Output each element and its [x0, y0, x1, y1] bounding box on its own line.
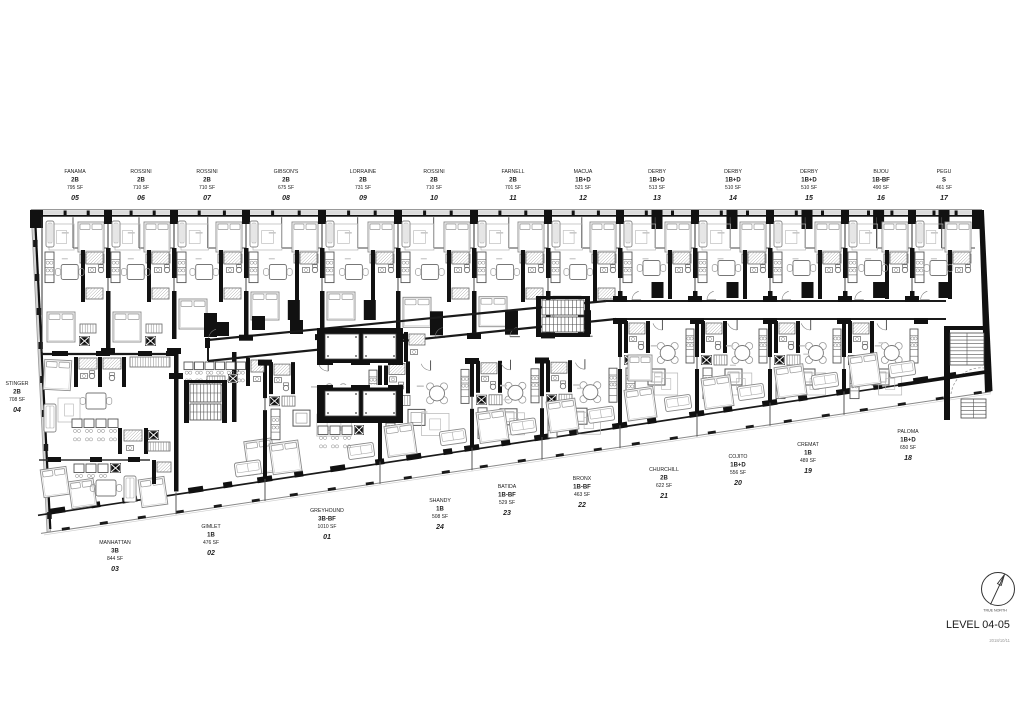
svg-text:BRONX: BRONX — [573, 476, 592, 482]
svg-text:18: 18 — [904, 455, 912, 462]
svg-text:07: 07 — [203, 195, 212, 202]
svg-text:1010 SF: 1010 SF — [318, 524, 337, 530]
svg-text:489 SF: 489 SF — [800, 458, 816, 464]
svg-text:04: 04 — [13, 407, 21, 414]
svg-text:529 SF: 529 SF — [499, 500, 515, 506]
svg-text:675 SF: 675 SF — [278, 185, 294, 191]
svg-text:1B+D: 1B+D — [575, 178, 591, 184]
svg-text:DERBY: DERBY — [800, 169, 818, 175]
svg-text:476 SF: 476 SF — [203, 540, 219, 546]
svg-text:SHANDY: SHANDY — [429, 498, 451, 504]
svg-text:1B-BF: 1B-BF — [872, 178, 890, 184]
svg-text:510 SF: 510 SF — [725, 185, 741, 191]
svg-text:19: 19 — [804, 468, 812, 475]
svg-text:1B: 1B — [436, 507, 444, 513]
svg-text:1B+D: 1B+D — [725, 178, 741, 184]
svg-text:2B: 2B — [13, 390, 21, 396]
svg-text:731 SF: 731 SF — [355, 185, 371, 191]
svg-text:2B: 2B — [282, 178, 290, 184]
svg-text:2B: 2B — [660, 476, 668, 482]
svg-text:GIMLET: GIMLET — [201, 524, 221, 530]
svg-text:FANAMA: FANAMA — [64, 169, 86, 175]
svg-text:650 SF: 650 SF — [900, 445, 916, 451]
svg-text:06: 06 — [137, 195, 145, 202]
svg-text:MACUA: MACUA — [574, 169, 593, 175]
svg-text:2B: 2B — [203, 178, 211, 184]
svg-text:ROSSINI: ROSSINI — [196, 169, 217, 175]
svg-text:2018/10/11: 2018/10/11 — [989, 638, 1010, 643]
svg-text:2B: 2B — [359, 178, 367, 184]
svg-text:1B+D: 1B+D — [801, 178, 817, 184]
svg-text:PALOMA: PALOMA — [897, 429, 919, 435]
svg-text:844 SF: 844 SF — [107, 556, 123, 562]
svg-text:556 SF: 556 SF — [730, 470, 746, 476]
svg-text:LEVEL 04-05: LEVEL 04-05 — [946, 619, 1010, 631]
svg-text:20: 20 — [733, 480, 742, 487]
svg-text:24: 24 — [435, 524, 444, 531]
svg-text:2B: 2B — [137, 178, 145, 184]
svg-text:S: S — [942, 178, 946, 184]
svg-text:09: 09 — [359, 195, 367, 202]
svg-text:08: 08 — [282, 195, 290, 202]
svg-text:22: 22 — [577, 502, 586, 509]
svg-text:2B: 2B — [430, 178, 438, 184]
svg-text:STINGER: STINGER — [5, 381, 28, 387]
svg-text:11: 11 — [509, 195, 516, 202]
svg-text:PEGU: PEGU — [937, 169, 952, 175]
svg-text:14: 14 — [729, 195, 737, 202]
svg-text:521 SF: 521 SF — [575, 185, 591, 191]
svg-text:23: 23 — [502, 510, 511, 517]
svg-text:513 SF: 513 SF — [649, 185, 665, 191]
svg-text:708 SF: 708 SF — [9, 397, 25, 403]
svg-text:510 SF: 510 SF — [801, 185, 817, 191]
svg-text:3B-BF: 3B-BF — [318, 517, 336, 523]
svg-text:21: 21 — [659, 493, 668, 500]
svg-text:05: 05 — [71, 195, 79, 202]
svg-text:710 SF: 710 SF — [426, 185, 442, 191]
svg-text:2B: 2B — [509, 178, 517, 184]
svg-text:FARNELL: FARNELL — [501, 169, 524, 175]
svg-text:01: 01 — [323, 534, 331, 541]
svg-text:12: 12 — [579, 195, 587, 202]
svg-text:2B: 2B — [71, 178, 79, 184]
svg-text:ROSSINI: ROSSINI — [130, 169, 151, 175]
svg-text:DERBY: DERBY — [648, 169, 666, 175]
svg-text:1B: 1B — [207, 533, 215, 539]
svg-text:710 SF: 710 SF — [133, 185, 149, 191]
svg-text:DERBY: DERBY — [724, 169, 742, 175]
svg-text:ROSSINI: ROSSINI — [423, 169, 444, 175]
svg-text:CHURCHILL: CHURCHILL — [649, 467, 679, 473]
svg-text:GIBSON'S: GIBSON'S — [274, 169, 299, 175]
svg-text:CREMAT: CREMAT — [797, 442, 819, 448]
svg-text:02: 02 — [207, 550, 215, 557]
svg-text:GREYHOUND: GREYHOUND — [310, 508, 344, 514]
svg-text:13: 13 — [653, 195, 661, 202]
svg-text:1B: 1B — [804, 451, 812, 457]
svg-text:701 SF: 701 SF — [505, 185, 521, 191]
svg-text:463 SF: 463 SF — [574, 492, 590, 498]
svg-text:622 SF: 622 SF — [656, 483, 672, 489]
svg-text:15: 15 — [805, 195, 813, 202]
svg-text:1B-BF: 1B-BF — [498, 493, 516, 499]
svg-text:1B+D: 1B+D — [649, 178, 665, 184]
svg-text:1B+D: 1B+D — [730, 463, 746, 469]
svg-text:710 SF: 710 SF — [199, 185, 215, 191]
svg-text:03: 03 — [111, 566, 119, 573]
svg-text:1B+D: 1B+D — [900, 438, 916, 444]
svg-text:795 SF: 795 SF — [67, 185, 83, 191]
svg-text:LORRAINE: LORRAINE — [350, 169, 377, 175]
svg-text:BATIDA: BATIDA — [498, 484, 517, 490]
svg-text:TRUE NORTH: TRUE NORTH — [983, 609, 1007, 613]
svg-text:490 SF: 490 SF — [873, 185, 889, 191]
svg-text:3B: 3B — [111, 549, 119, 555]
svg-text:MANHATTAN: MANHATTAN — [99, 540, 131, 546]
svg-text:508 SF: 508 SF — [432, 514, 448, 520]
svg-text:BIJOU: BIJOU — [873, 169, 889, 175]
svg-text:COJITO: COJITO — [729, 454, 748, 460]
svg-text:17: 17 — [940, 195, 949, 202]
svg-text:1B-BF: 1B-BF — [573, 485, 591, 491]
svg-text:461 SF: 461 SF — [936, 185, 952, 191]
svg-text:10: 10 — [430, 195, 438, 202]
svg-text:16: 16 — [877, 195, 885, 202]
